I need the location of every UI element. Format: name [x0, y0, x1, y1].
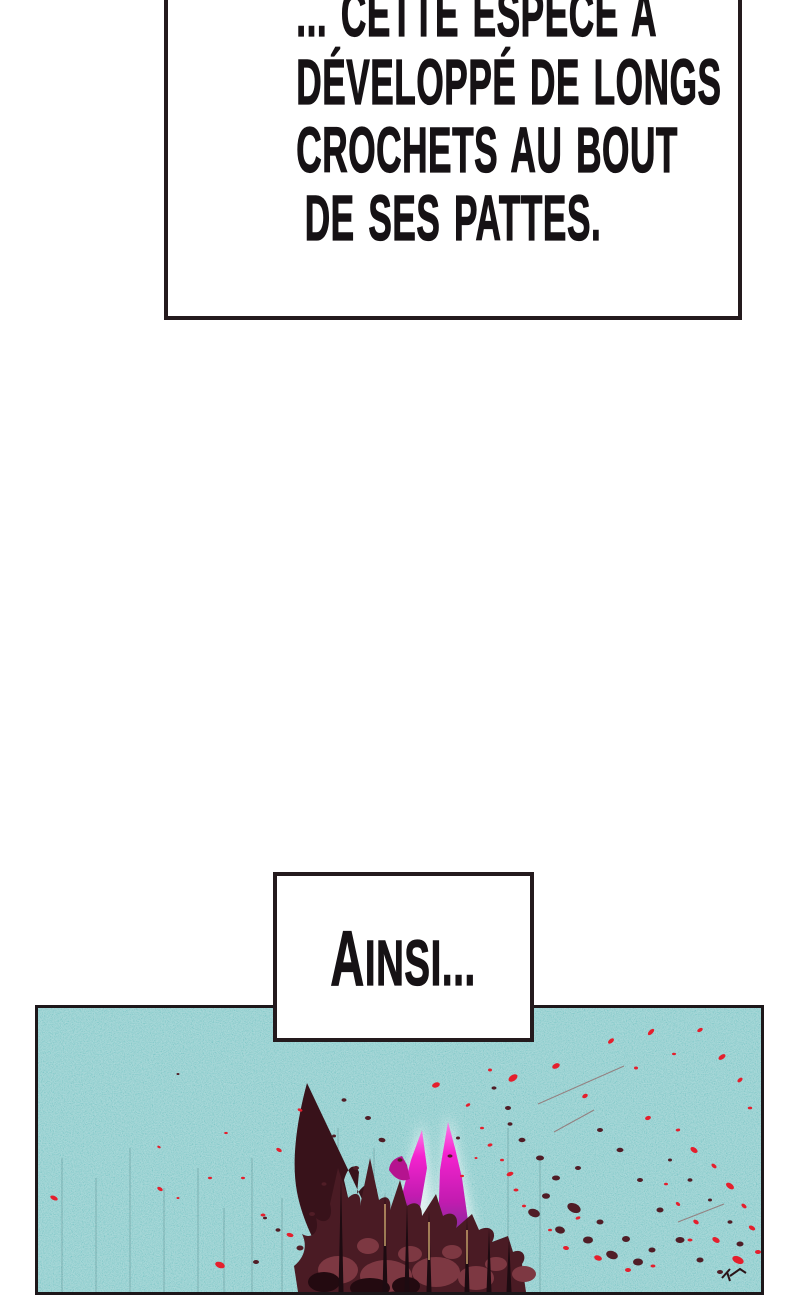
droplet: [492, 1086, 497, 1089]
droplet: [633, 1259, 643, 1266]
droplet: [688, 1239, 693, 1242]
droplet: [548, 1229, 552, 1232]
droplet: [597, 1128, 603, 1132]
droplet: [536, 1156, 544, 1161]
droplet: [688, 1178, 693, 1182]
narration-line: ... CETTE ESPECE A: [296, 0, 610, 48]
droplet: [672, 1053, 676, 1055]
droplet: [668, 1159, 672, 1162]
droplet: [224, 1132, 228, 1134]
droplet: [475, 1157, 478, 1159]
droplet: [583, 1237, 593, 1244]
droplet: [353, 1166, 359, 1170]
droplet: [748, 1107, 752, 1110]
narration-line: DÉVELOPPÉ DE LONGS: [296, 48, 610, 116]
droplet: [448, 1154, 453, 1157]
droplet: [456, 1137, 460, 1140]
droplet: [505, 1106, 511, 1110]
droplet: [717, 1270, 723, 1274]
droplet: [651, 1265, 656, 1268]
splatter-artwork: [38, 1008, 761, 1292]
narration-text-top: ... CETTE ESPECE A DÉVELOPPÉ DE LONGS CR…: [296, 0, 610, 252]
droplet: [728, 1220, 733, 1224]
droplet: [664, 1183, 668, 1186]
droplet: [697, 1258, 704, 1263]
droplet: [500, 1159, 504, 1162]
droplet: [460, 1175, 464, 1177]
droplet: [522, 1205, 526, 1208]
droplet: [480, 1127, 484, 1130]
droplet: [622, 1236, 630, 1242]
droplet: [597, 1220, 604, 1225]
droplet: [737, 1242, 744, 1247]
narration-box-ainsi: AINSI...: [273, 872, 534, 1042]
droplet: [657, 1208, 664, 1213]
droplet: [241, 1177, 245, 1179]
droplet: [649, 1248, 656, 1253]
droplet: [261, 1214, 266, 1217]
comic-page: ... CETTE ESPECE A DÉVELOPPÉ DE LONGS CR…: [0, 0, 800, 1280]
droplet: [488, 1069, 492, 1072]
droplet: [342, 1098, 347, 1102]
droplet: [332, 1135, 336, 1138]
droplet: [177, 1197, 180, 1199]
droplet: [208, 1177, 212, 1179]
droplet: [617, 1148, 624, 1152]
droplet: [297, 1246, 304, 1251]
droplet: [676, 1237, 685, 1243]
narration-box-top: ... CETTE ESPECE A DÉVELOPPÉ DE LONGS CR…: [164, 0, 742, 320]
narration-line: DE SES PATTES.: [296, 184, 610, 252]
droplet: [637, 1178, 643, 1182]
droplet: [276, 1228, 281, 1232]
droplet: [309, 1212, 315, 1216]
comic-panel: [35, 1005, 764, 1295]
droplet: [514, 1189, 519, 1192]
droplet: [575, 1166, 581, 1170]
droplet: [552, 1176, 560, 1181]
droplet: [398, 1158, 403, 1162]
droplet: [708, 1199, 712, 1202]
narration-text-ainsi: AINSI...: [331, 926, 476, 995]
droplet: [542, 1193, 550, 1199]
droplet: [755, 1250, 761, 1254]
droplet: [365, 1116, 371, 1120]
droplet: [322, 1182, 327, 1186]
droplet: [634, 1067, 638, 1070]
droplet: [253, 1260, 259, 1264]
droplet: [625, 1268, 631, 1272]
droplet: [519, 1138, 526, 1142]
droplet: [177, 1073, 180, 1075]
narration-line: CROCHETS AU BOUT: [296, 116, 610, 184]
droplet: [263, 1217, 267, 1220]
droplet: [508, 1122, 513, 1126]
